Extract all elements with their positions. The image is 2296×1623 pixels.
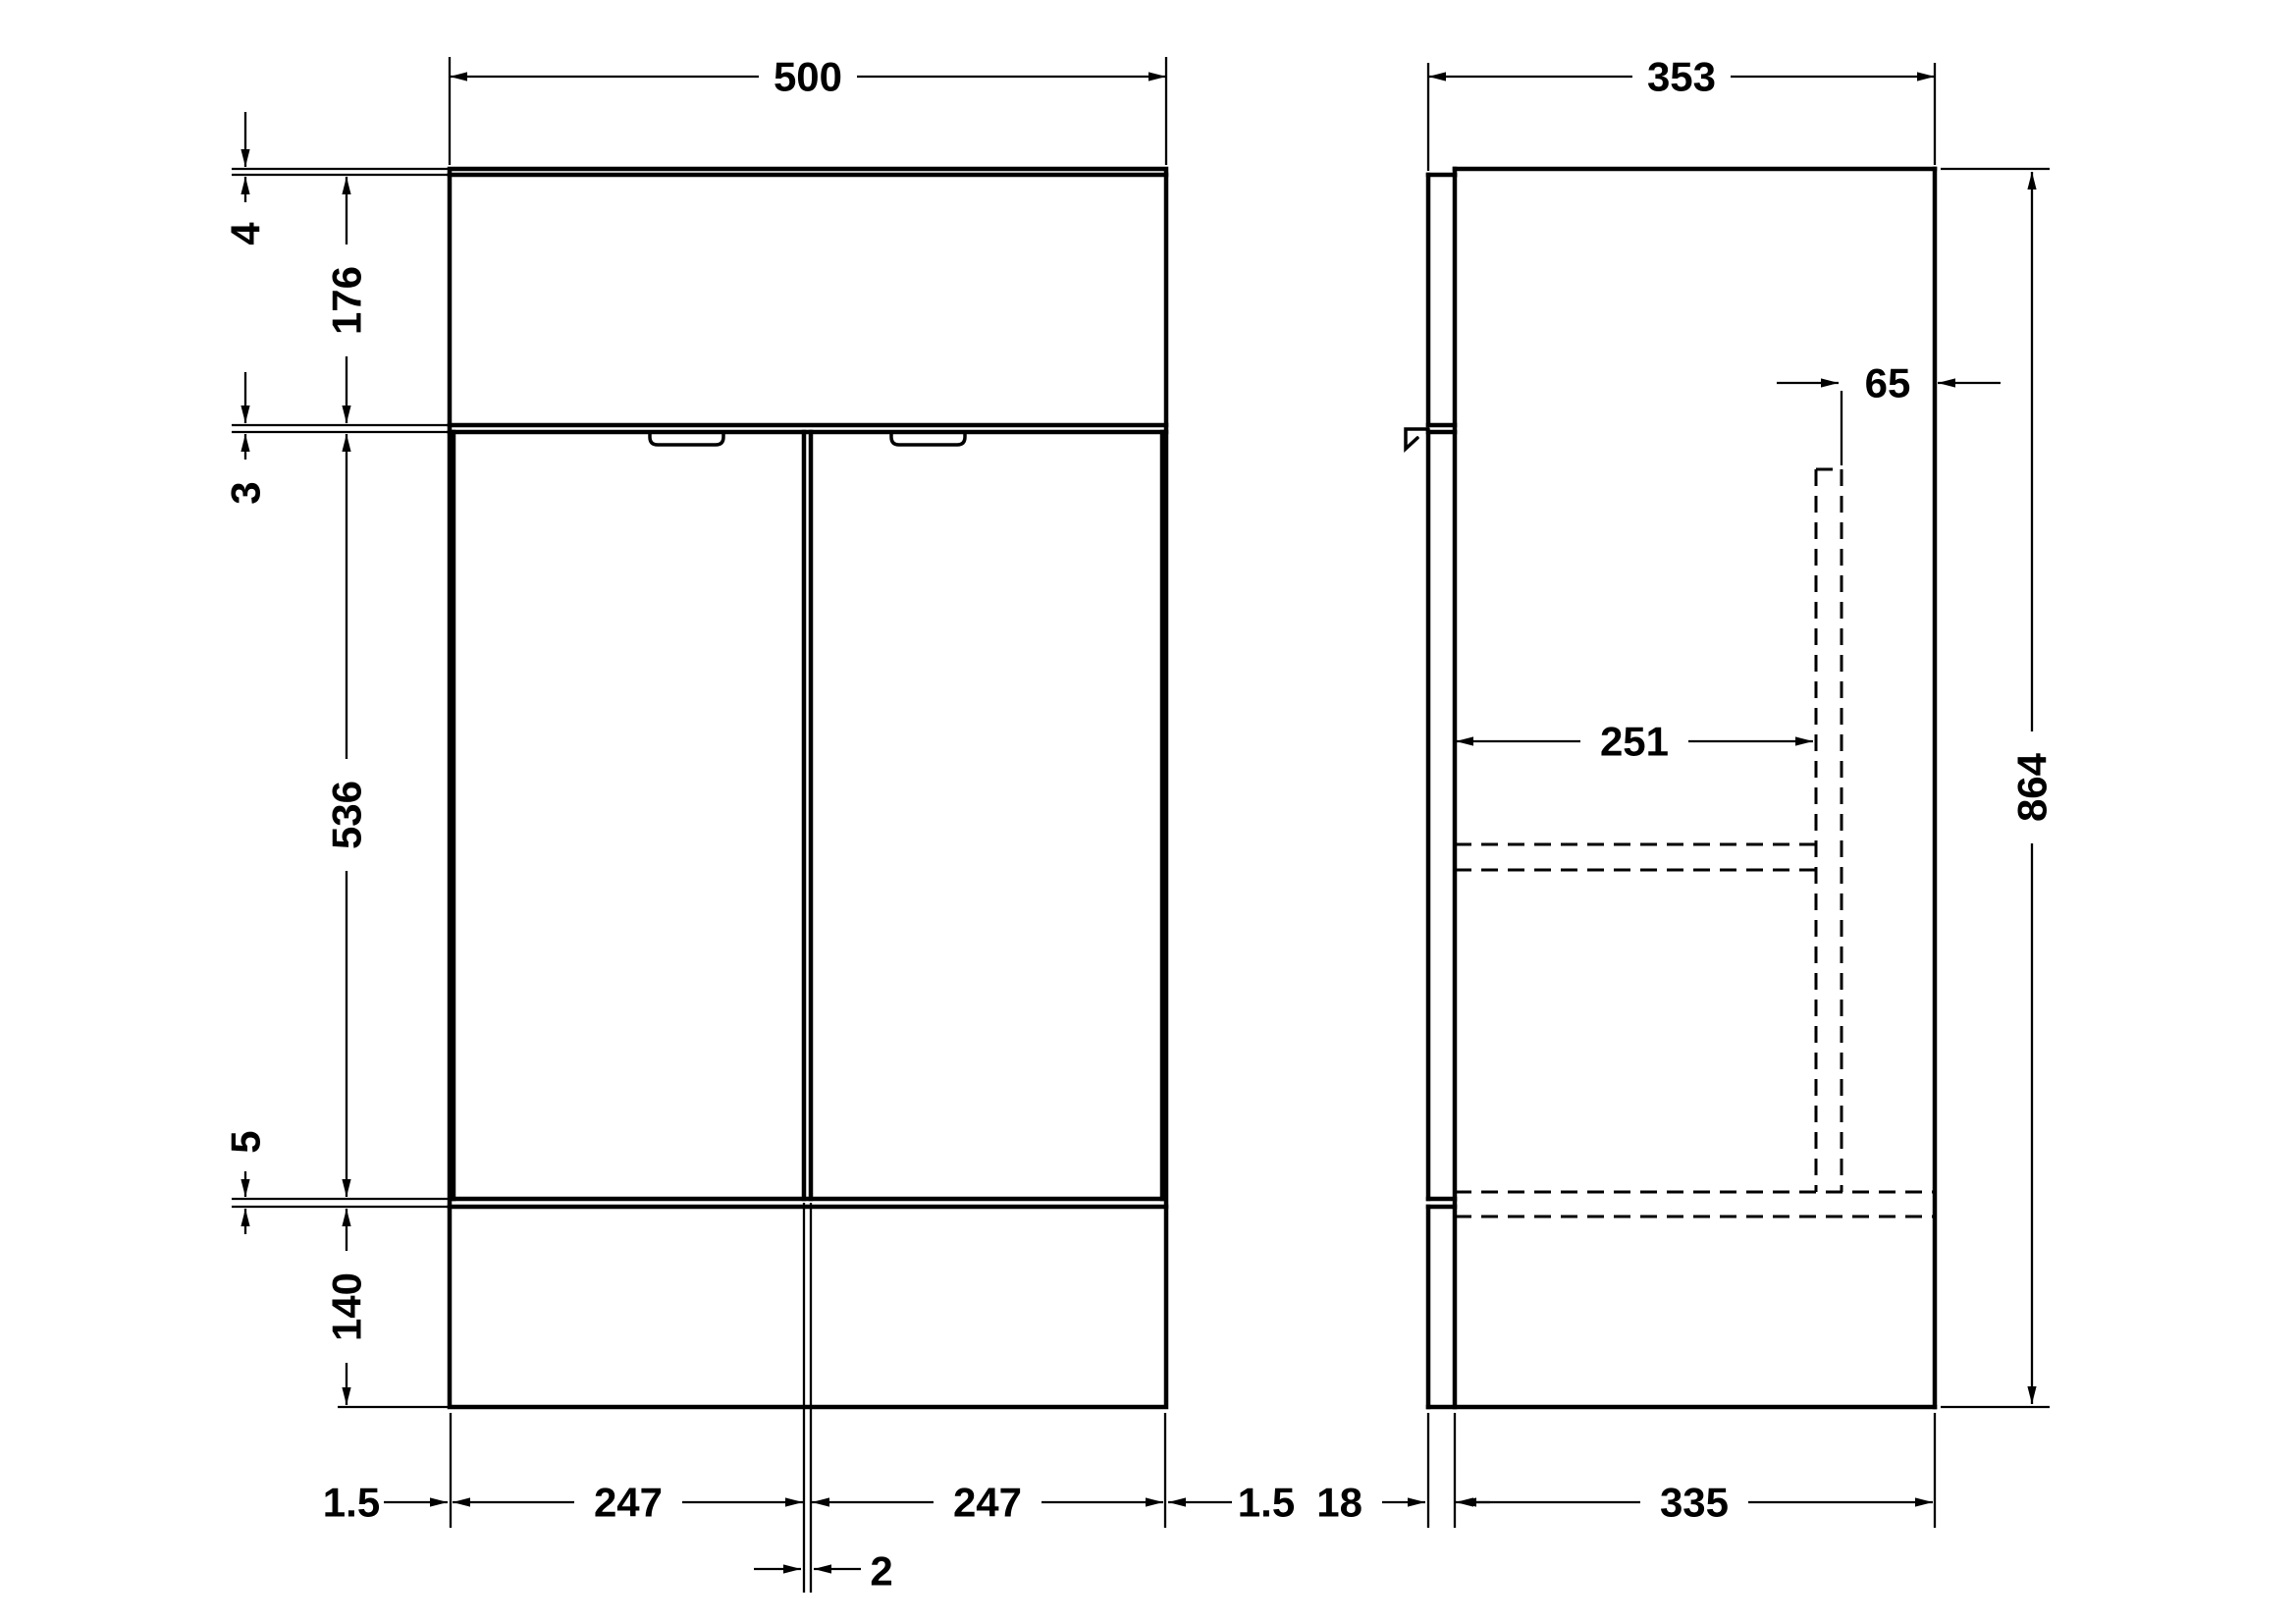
dim-label-overall-height: 864 xyxy=(2009,752,2056,822)
dim-label-door-height: 536 xyxy=(324,781,370,849)
vanity-unit-drawing: 500 4 176 3 536 5 140 1.5 247 247 xyxy=(0,0,2296,1623)
technical-drawing-page: 500 4 176 3 536 5 140 1.5 247 247 xyxy=(0,0,2296,1623)
dim-label-right-door-width: 247 xyxy=(953,1480,1022,1526)
dim-label-overall-width: 500 xyxy=(774,54,842,100)
dim-label-basin-panel-height: 176 xyxy=(324,266,370,335)
dim-label-left-door-width: 247 xyxy=(594,1480,663,1526)
dim-label-left-edge-gap: 1.5 xyxy=(323,1480,380,1526)
dim-label-front-plane-offset: 18 xyxy=(1316,1480,1362,1526)
dim-label-carcass-depth: 335 xyxy=(1660,1480,1729,1526)
side-handle-profile xyxy=(1406,429,1428,449)
dim-label-top-reveal: 3 xyxy=(223,481,269,504)
dim-label-internal-depth: 251 xyxy=(1600,719,1669,765)
dim-label-plinth-height: 140 xyxy=(324,1272,370,1341)
front-view-outline xyxy=(450,169,1166,1407)
dim-label-center-door-gap: 2 xyxy=(870,1548,892,1595)
front-dimensions: 500 4 176 3 536 5 140 1.5 247 247 xyxy=(223,54,1296,1595)
front-carcass-outline xyxy=(450,169,1166,1407)
dim-label-bottom-reveal: 5 xyxy=(223,1130,269,1153)
dim-label-right-edge-gap: 1.5 xyxy=(1238,1480,1295,1526)
dim-label-top-lip: 4 xyxy=(223,222,269,245)
extension-lines xyxy=(232,57,2050,1593)
dim-label-rear-service-gap: 65 xyxy=(1865,360,1911,406)
side-view-outline xyxy=(1406,169,1935,1407)
dim-label-overall-depth: 353 xyxy=(1647,54,1716,100)
